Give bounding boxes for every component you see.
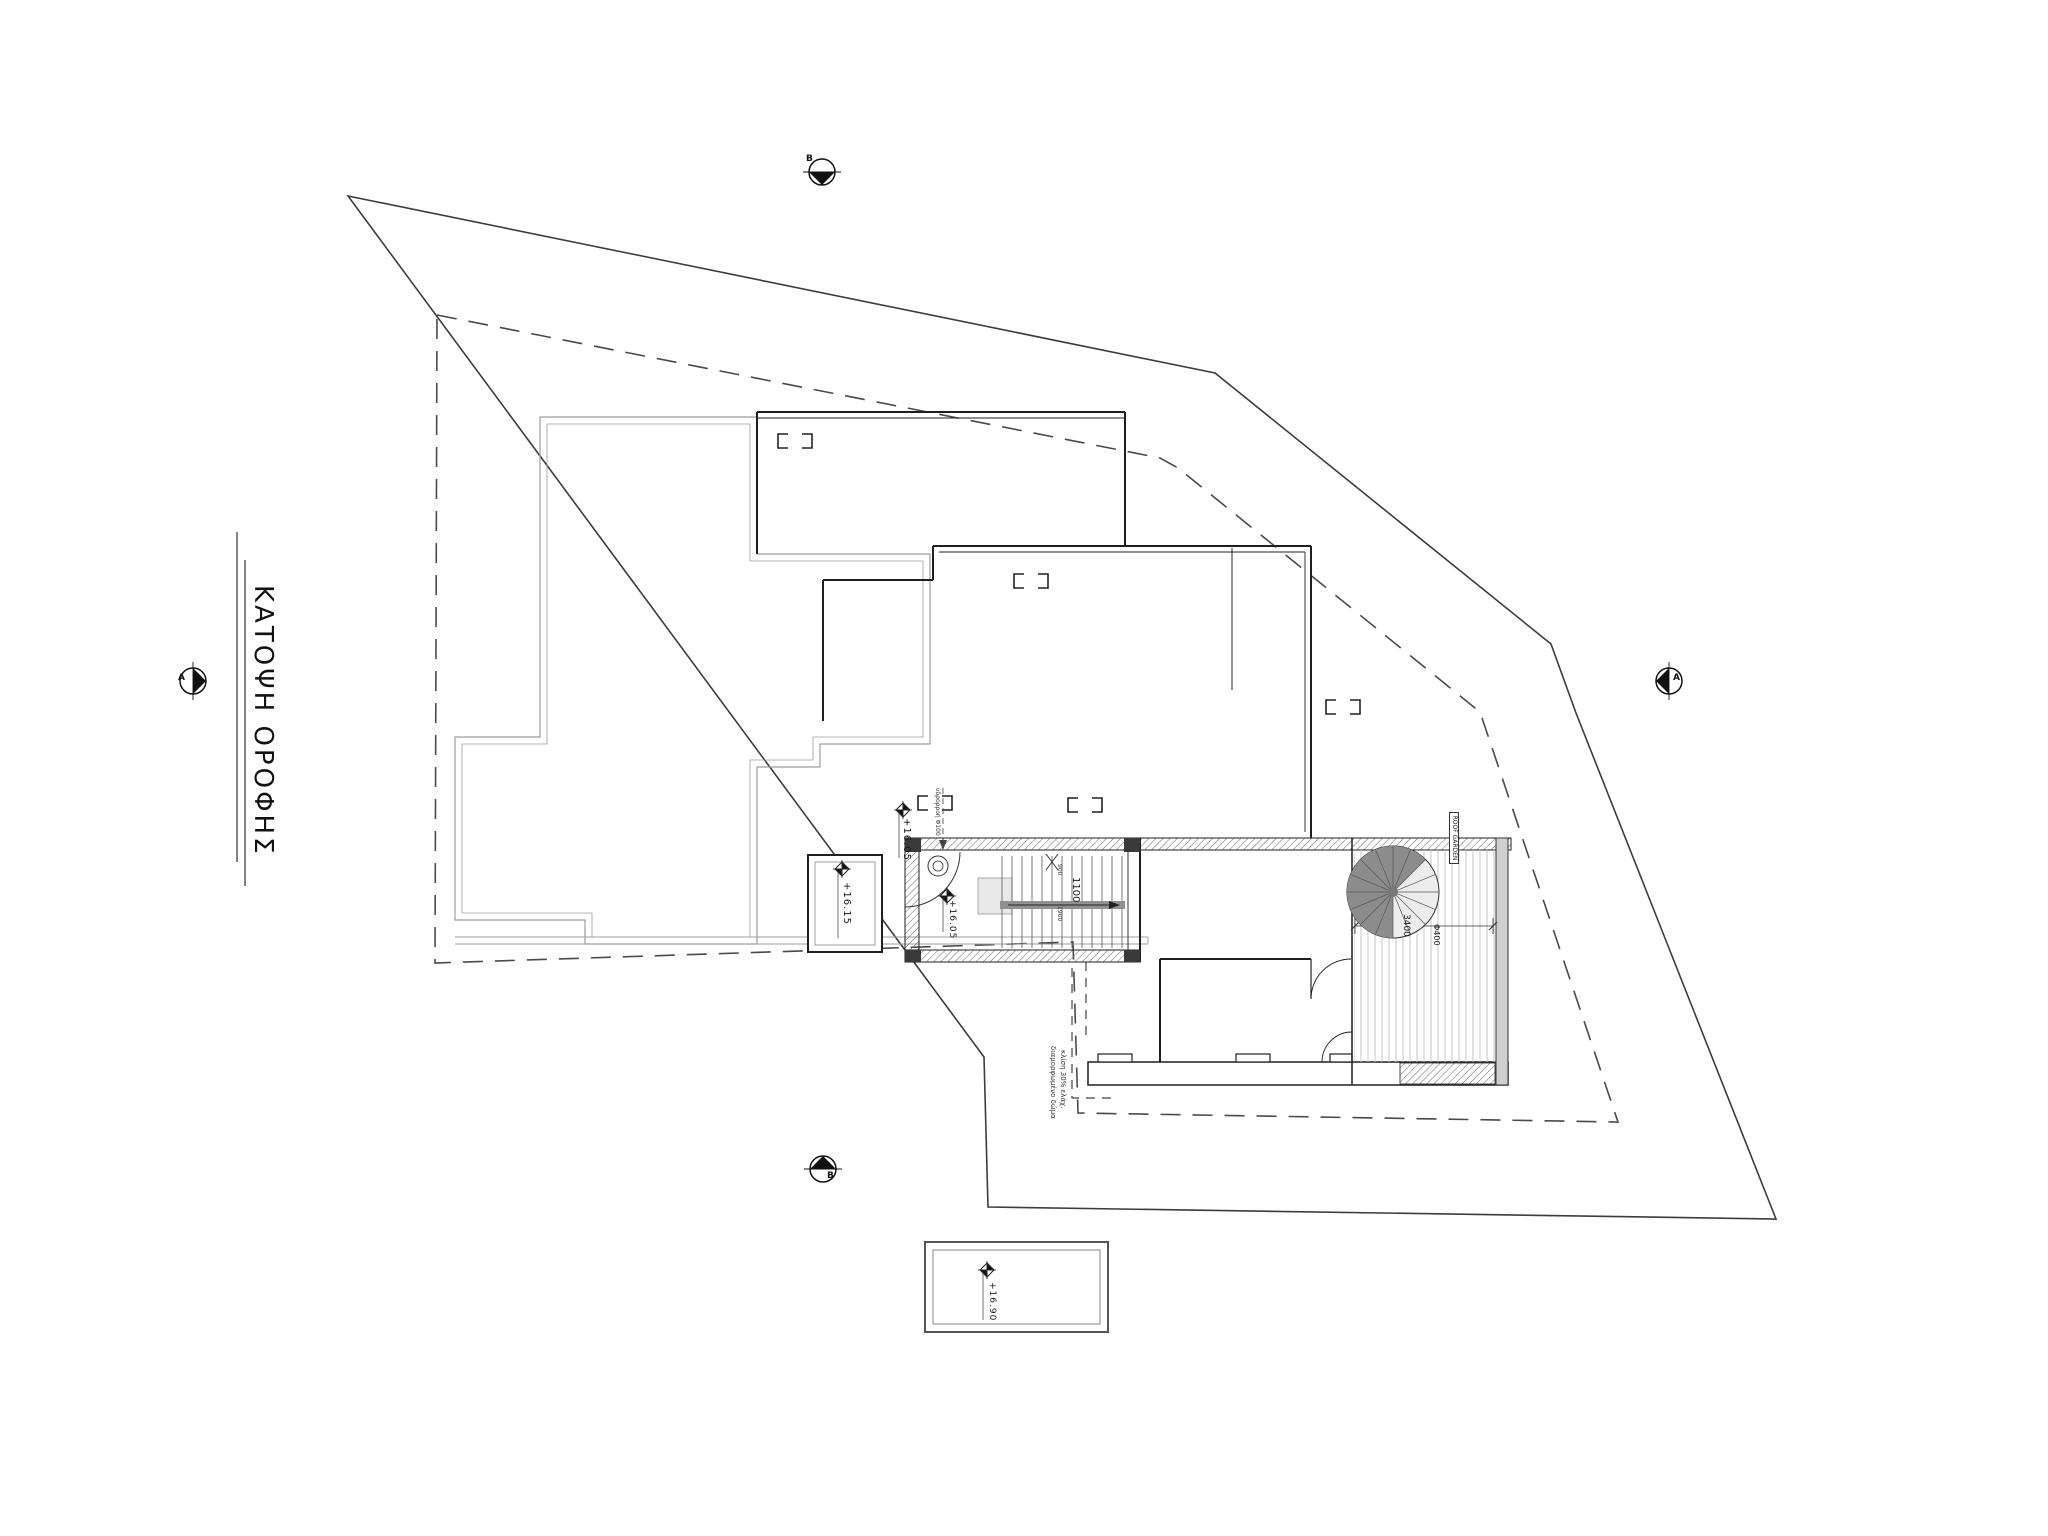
section-letter-left: Α <box>178 674 185 683</box>
dim-deck-span: 3400 <box>1401 914 1410 937</box>
section-letter-bottom: Β <box>827 1172 834 1181</box>
plan-linework <box>0 0 2048 1536</box>
roof-vents <box>778 434 1360 812</box>
drain-annotation: υδρορροή Φ100 <box>934 788 940 836</box>
section-letter-top: Β <box>806 155 813 164</box>
title-rules <box>237 532 245 886</box>
deck-label-box: ROOF GARDEN <box>1449 812 1459 864</box>
level-label-stair-out: +16.05 <box>901 818 911 861</box>
roof-note-line1: διαμορφωμένο δώμα <box>1049 1046 1056 1119</box>
dim-stair-width: 1100 <box>1070 877 1080 902</box>
level-label-stair-in: +16.05 <box>947 900 956 939</box>
dim-spiral: Φ400 <box>1432 924 1440 946</box>
lower-roof-outline <box>455 417 1148 944</box>
section-letter-right: Α <box>1673 674 1680 683</box>
building-walls <box>757 412 1311 838</box>
roof-deck <box>1347 838 1508 1085</box>
dim-rise-lower: 1900 <box>1056 906 1062 921</box>
roof-note-line2: κλίση 30% ελάχ. <box>1059 1050 1066 1108</box>
drawing-title: ΚΑΤΟΨΗ ΟΡΟΦΗΣ <box>250 585 276 857</box>
level-label-pool: +16.90 <box>987 1282 996 1321</box>
spiral-stair <box>1347 846 1439 938</box>
roof-plan-canvas: ΚΑΤΟΨΗ ΟΡΟΦΗΣ +16.05 +16.05 +16.15 +16.9… <box>0 0 2048 1536</box>
section-marker-bottom <box>804 1156 842 1182</box>
dim-rise-upper: 900 <box>1056 864 1062 875</box>
level-label-west-box: +16.15 <box>841 882 851 925</box>
pool <box>925 1242 1108 1332</box>
